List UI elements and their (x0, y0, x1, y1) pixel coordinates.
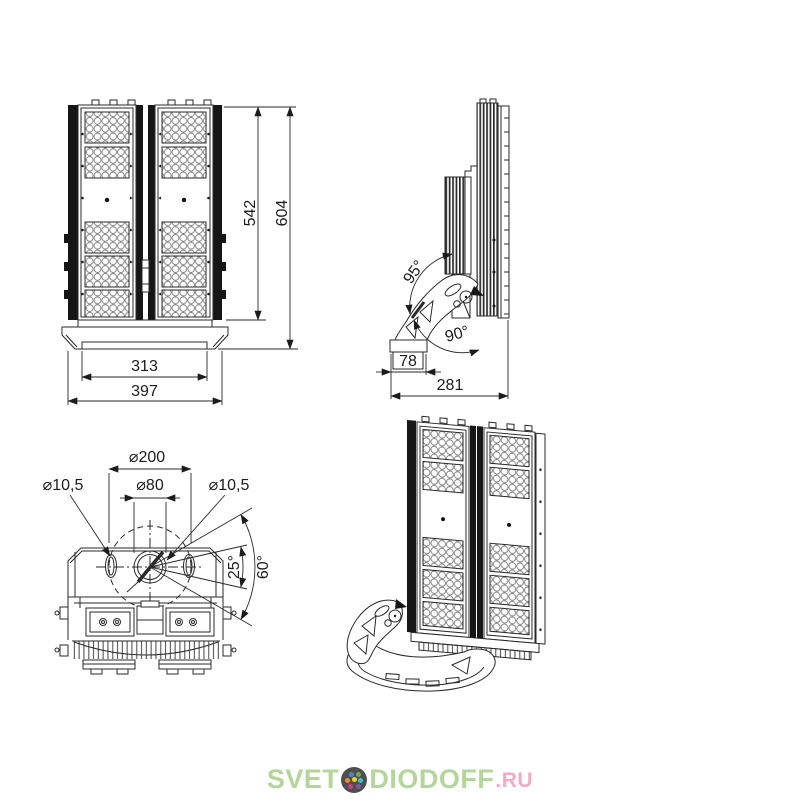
iso-panels (407, 415, 545, 661)
front-base-bracket (62, 320, 228, 349)
led-disc-icon (341, 767, 367, 793)
logo-word-left: SVET (267, 764, 340, 795)
led-panel-left (78, 105, 136, 320)
led-panel-right (155, 105, 213, 320)
led-dot-green (356, 772, 361, 777)
dim-side-tilt-back: 95° (401, 257, 429, 287)
logo-tld: .RU (495, 769, 533, 795)
dim-top-slot-left: ⌀10,5 (43, 477, 84, 494)
led-dot-cyan (358, 778, 363, 783)
heatsink-profile-tall (477, 99, 509, 318)
led-dot-orange (345, 778, 350, 783)
led-dot-yellow (352, 777, 357, 782)
dim-top-bolt-circle: ⌀200 (129, 449, 165, 466)
led-dot-blue (349, 772, 354, 777)
led-dot-magenta (348, 784, 353, 789)
led-dot-purple (356, 784, 361, 789)
technical-drawing: 542 604 313 397 (0, 0, 800, 800)
dim-front-inner-height: 542 (242, 200, 259, 227)
drawing-sheet: 542 604 313 397 (0, 0, 800, 800)
housing-back (55, 601, 236, 674)
dim-top-center-hole: ⌀80 (136, 477, 164, 494)
front-view-drawing: 542 604 313 397 (62, 100, 298, 405)
dim-side-tilt-forward: 90° (443, 323, 471, 346)
dim-top-swivel-major: 60° (255, 555, 272, 579)
top-view-drawing: ⌀200 ⌀10,5 ⌀80 ⌀10,5 25° 60° (43, 449, 272, 674)
dim-front-total-height: 604 (274, 200, 291, 227)
dim-top-slot-right: ⌀10,5 (209, 477, 250, 494)
iso-view-drawing (347, 415, 545, 691)
site-logo: SVET DIODOFF .RU (0, 764, 800, 795)
dim-side-total-depth: 281 (437, 377, 464, 394)
front-top-tabs (92, 100, 211, 105)
dim-side-foot-depth: 78 (399, 353, 417, 370)
logo-word-right: DIODOFF (369, 764, 494, 795)
dim-front-total-width: 397 (131, 383, 158, 400)
center-clip (142, 260, 149, 292)
dim-front-inner-width: 313 (131, 358, 158, 375)
side-view-drawing: 95° 90° 78 281 (376, 99, 509, 399)
dim-top-swivel-minor: 25° (226, 555, 243, 579)
